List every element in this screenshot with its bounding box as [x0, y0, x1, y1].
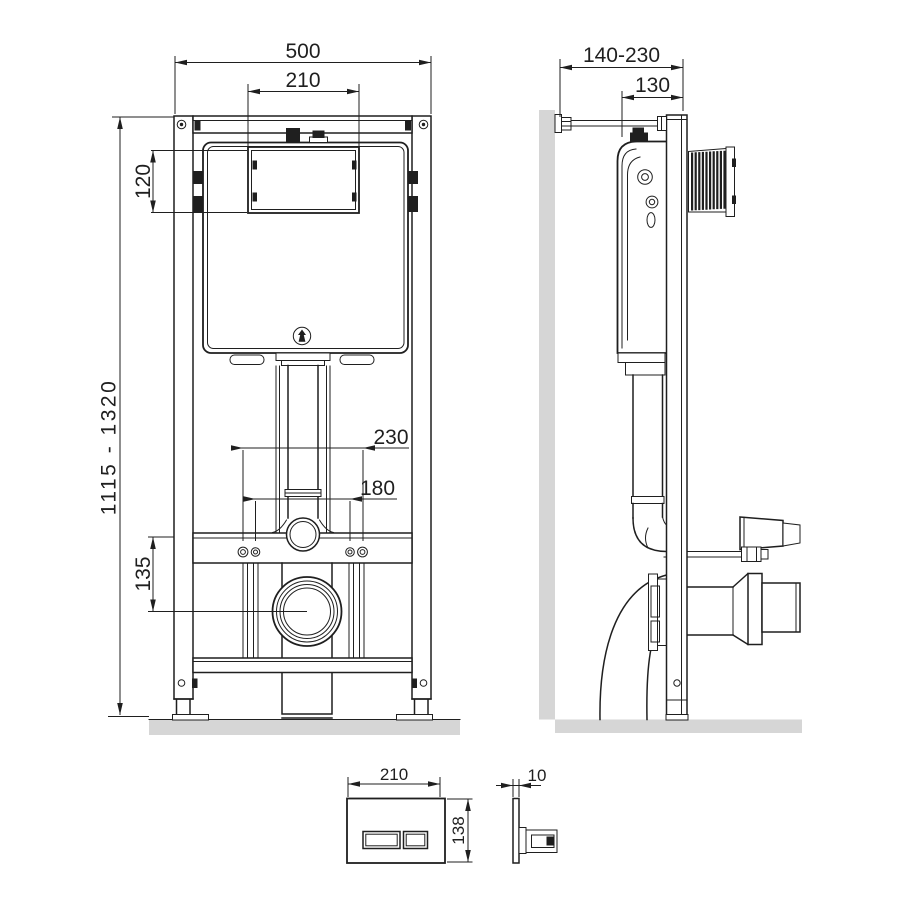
mounting-rods — [276, 366, 330, 533]
dim-opening-width-lines — [248, 84, 359, 146]
bellows-end-cap — [726, 147, 735, 217]
flush-valve-flange — [276, 353, 330, 361]
fill-valve-connector — [286, 128, 300, 143]
outlet-flange — [649, 574, 658, 651]
dimensions-front: 500 210 120 1115 - 1320 230 180 135 — [98, 40, 432, 717]
anchor-rod — [571, 121, 658, 127]
dim-label-overall-width: 500 — [285, 40, 320, 63]
fixing-hole-outer-right — [358, 547, 368, 557]
valve-port-lower — [646, 196, 658, 208]
hose-connector — [313, 131, 325, 139]
frame-lower-rail — [193, 658, 412, 673]
floor-front — [149, 720, 460, 736]
rod-nut — [742, 547, 762, 562]
inspection-opening — [248, 147, 359, 213]
valve-port-upper — [638, 170, 653, 185]
waste-connector-pipe — [687, 587, 733, 635]
bellows-ribs — [691, 151, 726, 211]
drawing-canvas: 500 210 120 1115 - 1320 230 180 135 140-… — [0, 0, 900, 900]
dim-label-plate-height: 138 — [449, 816, 468, 844]
cistern-top-cap — [630, 133, 648, 142]
flush-plate-side-view — [513, 799, 557, 864]
legs — [174, 699, 431, 715]
cistern-slot-left — [230, 355, 264, 365]
dim-label-fixing-outer: 230 — [373, 426, 408, 449]
foot-right — [397, 715, 433, 721]
flush-valve-side — [626, 363, 666, 376]
front-view — [149, 116, 460, 735]
floor-side — [555, 720, 802, 734]
frame-rail-side — [667, 115, 688, 718]
flush-pipe-port — [287, 518, 320, 551]
dim-label-fixing-inner: 180 — [360, 477, 395, 500]
flush-elbow — [633, 518, 667, 552]
dim-label-wall-distance: 140-230 — [583, 44, 660, 67]
dim-label-opening-width: 210 — [285, 69, 320, 92]
dim-label-install-height: 1115 - 1320 — [98, 379, 121, 515]
side-view — [539, 110, 802, 733]
dim-label-plate-width: 210 — [380, 765, 408, 784]
flush-connector-sleeve — [783, 523, 800, 546]
foot-side — [666, 715, 688, 721]
fixing-hole-inner-right — [346, 548, 355, 557]
flush-plate-front-view — [347, 799, 445, 864]
wall — [539, 110, 555, 720]
frame-top-rail — [193, 116, 412, 133]
strut-left — [243, 563, 258, 658]
technical-drawing: 500 210 120 1115 - 1320 230 180 135 140-… — [0, 0, 900, 900]
anchor-plate — [555, 115, 562, 133]
cistern-slot-right — [340, 355, 374, 365]
anchor-nut — [562, 118, 572, 131]
pipe-joint — [632, 497, 665, 504]
fixing-hole-inner-left — [251, 548, 260, 557]
flush-connector — [740, 517, 783, 550]
waste-connector-ring — [748, 574, 762, 645]
flush-plate-side — [513, 799, 519, 864]
dim-label-depth: 130 — [635, 74, 670, 97]
dim-label-plate-thickness: 10 — [528, 766, 547, 785]
mechanism-flange — [519, 828, 526, 854]
flush-pipe-side — [633, 375, 663, 497]
dim-label-outlet-offset: 135 — [132, 556, 155, 591]
dim-label-opening-height: 120 — [132, 164, 155, 199]
leg-clips — [192, 679, 417, 689]
fixing-hole-outer-left — [238, 547, 248, 557]
strut-right — [349, 563, 364, 658]
waste-connector-sleeve — [762, 583, 800, 632]
foot-left — [173, 715, 209, 721]
